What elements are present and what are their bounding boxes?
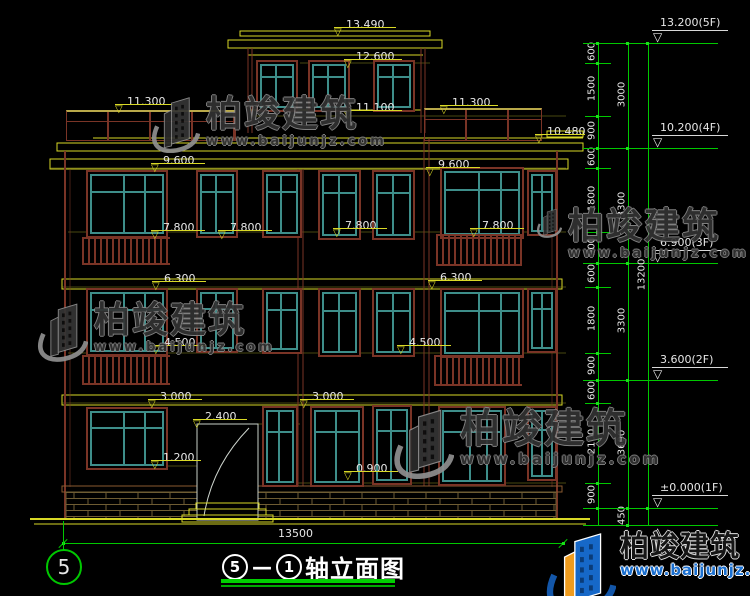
dimension-grip <box>646 42 649 45</box>
width-dimension-line <box>63 543 563 544</box>
dimension-value: 3000 <box>617 64 628 124</box>
level-value: 7.800 <box>345 219 377 232</box>
level-flag: 6.300 ▽ <box>164 267 196 293</box>
dimension-grip <box>626 42 629 45</box>
level-value: 0.900 <box>356 462 388 475</box>
level-triangle-icon: ▽ <box>653 31 662 43</box>
level-triangle-icon: ▽ <box>193 420 201 429</box>
level-value: 4.500 <box>409 336 441 349</box>
level-triangle-icon: ▽ <box>428 281 436 290</box>
title-underline-thick <box>221 579 395 583</box>
level-triangle-icon: ▽ <box>653 496 662 508</box>
floor-level-line <box>583 525 718 526</box>
level-flag: 4.500 ▽ <box>409 331 441 357</box>
dimension-grip <box>596 482 599 485</box>
level-flag: 7.800 ▽ <box>163 216 195 242</box>
window <box>262 406 298 487</box>
watermark-url: www.baijunjz.com <box>94 340 275 355</box>
level-flag: 7.800 ▽ <box>482 214 514 240</box>
watermark: 柏竣建筑 www.baijunjz.com <box>36 302 275 362</box>
level-triangle-icon: ▽ <box>440 106 448 115</box>
dimension-grip <box>596 286 599 289</box>
level-triangle-icon: ▽ <box>397 346 405 355</box>
dimension-grip <box>596 42 599 45</box>
window <box>372 170 415 240</box>
title-axis-start-bubble: 5 <box>222 554 248 580</box>
level-triangle-icon: ▽ <box>300 400 308 409</box>
level-value: 13.490 <box>346 18 385 31</box>
dimension-grip <box>626 262 629 265</box>
watermark-brand: 柏竣建筑 <box>206 96 387 134</box>
dimension-grip <box>626 524 629 527</box>
dimension-grip <box>596 402 599 405</box>
brand-building-icon <box>536 208 562 238</box>
level-triangle-icon: ▽ <box>344 472 352 481</box>
brand-logo-name: 柏竣建筑 <box>620 531 750 561</box>
brand-logo: 柏竣建筑 www.baijunjz.com <box>544 531 750 596</box>
stone-base <box>62 486 562 519</box>
level-flag: 11.300 ▽ <box>452 91 491 117</box>
floor-level-label: 13.200(5F) <box>660 16 720 29</box>
level-value: 6.300 <box>440 271 472 284</box>
entry-door <box>197 424 258 520</box>
level-value: 11.300 <box>452 96 491 109</box>
watermark-brand: 柏竣建筑 <box>568 208 749 246</box>
dimension-grip <box>596 147 599 150</box>
level-value: 7.800 <box>163 221 195 234</box>
level-triangle-icon: ▽ <box>535 135 543 144</box>
brand-building-icon <box>36 302 88 362</box>
watermark-brand: 柏竣建筑 <box>460 408 661 450</box>
dimension-grip <box>626 379 629 382</box>
dimension-grip <box>596 507 599 510</box>
watermark-url: www.baijunjz.com <box>568 246 749 261</box>
watermark-brand: 柏竣建筑 <box>94 302 275 340</box>
watermark: 柏竣建筑 www.baijunjz.com <box>536 208 749 261</box>
brand-building-icon <box>544 531 616 596</box>
level-triangle-icon: ▽ <box>426 168 434 177</box>
level-flag: 7.800 ▽ <box>345 214 377 240</box>
ground-line <box>30 519 590 524</box>
floor-level-label: 10.200(4F) <box>660 121 720 134</box>
level-triangle-icon: ▽ <box>653 368 662 380</box>
floor-level-label: ±0.000(1F) <box>660 481 723 494</box>
level-triangle-icon: ▽ <box>151 164 159 173</box>
level-flag: 12.600 ▽ <box>356 45 395 71</box>
level-flag: 3.000 ▽ <box>312 385 344 411</box>
dimension-grip <box>596 62 599 65</box>
level-flag: 7.800 ▽ <box>230 216 262 242</box>
watermark: 柏竣建筑 www.baijunjz.com <box>150 96 387 153</box>
level-flag: 3.000 ▽ <box>160 385 192 411</box>
level-triangle-icon: ▽ <box>344 60 352 69</box>
dimension-grip <box>596 379 599 382</box>
dimension-grip <box>596 352 599 355</box>
balcony-railing <box>434 355 522 386</box>
level-triangle-icon: ▽ <box>148 400 156 409</box>
floor-level-underline <box>652 495 728 496</box>
level-flag: 1.200 ▽ <box>163 446 195 472</box>
dimension-value: 3300 <box>617 290 628 350</box>
level-value: 12.600 <box>356 50 395 63</box>
level-value: 3.000 <box>312 390 344 403</box>
title-separator: — <box>252 555 272 579</box>
level-value: 3.000 <box>160 390 192 403</box>
level-triangle-icon: ▽ <box>152 282 160 291</box>
axis-line <box>63 521 64 551</box>
level-triangle-icon: ▽ <box>653 136 662 148</box>
level-value: 9.600 <box>438 158 470 171</box>
level-triangle-icon: ▽ <box>151 231 159 240</box>
window <box>440 288 524 358</box>
window <box>527 288 557 353</box>
level-value: 9.600 <box>163 154 195 167</box>
level-triangle-icon: ▽ <box>333 229 341 238</box>
level-value: 6.300 <box>164 272 196 285</box>
width-dimension-label: 13500 <box>278 527 313 540</box>
window <box>262 170 302 238</box>
level-value: 10.480 <box>547 125 586 138</box>
level-triangle-icon: ▽ <box>151 461 159 470</box>
dimension-grip <box>596 262 599 265</box>
brand-logo-url: www.baijunjz.com <box>620 561 750 579</box>
level-flag: 10.480 ▽ <box>547 120 586 146</box>
dimension-grip <box>626 507 629 510</box>
dimension-grip <box>626 147 629 150</box>
brand-building-icon <box>392 408 454 479</box>
title-underline-thin <box>221 585 395 587</box>
level-value: 2.400 <box>205 410 237 423</box>
level-flag: 0.900 ▽ <box>356 457 388 483</box>
floor-level-underline <box>652 30 728 31</box>
floor-level-label: 3.600(2F) <box>660 353 713 366</box>
watermark: 柏竣建筑 www.baijunjz.com <box>392 408 661 479</box>
level-value: 7.800 <box>482 219 514 232</box>
dimension-grip <box>596 167 599 170</box>
balcony-railing <box>82 237 170 265</box>
level-flag: 9.600 ▽ <box>438 153 470 179</box>
level-flag: 6.300 ▽ <box>440 266 472 292</box>
level-triangle-icon: ▽ <box>334 28 342 37</box>
level-flag: 2.400 ▽ <box>205 405 237 431</box>
axis-bubble-number: 5 <box>58 555 71 579</box>
watermark-url: www.baijunjz.com <box>460 450 661 468</box>
level-triangle-icon: ▽ <box>115 105 123 114</box>
floor-level-underline <box>652 367 728 368</box>
floor-level-underline <box>652 135 728 136</box>
dimension-grip <box>596 115 599 118</box>
level-triangle-icon: ▽ <box>470 229 478 238</box>
window <box>86 170 168 238</box>
level-triangle-icon: ▽ <box>218 231 226 240</box>
level-value: 7.800 <box>230 221 262 234</box>
level-flag: 13.490 ▽ <box>346 13 385 39</box>
dimension-grip <box>646 507 649 510</box>
brand-building-icon <box>150 96 200 153</box>
elevation-drawing-canvas: 13500 5 5 — 1 轴立面图 13.490 ▽ 1 <box>0 0 750 596</box>
title-axis-end-bubble: 1 <box>276 554 302 580</box>
level-value: 1.200 <box>163 451 195 464</box>
axis-bubble: 5 <box>46 549 82 585</box>
window <box>318 288 361 357</box>
watermark-url: www.baijunjz.com <box>206 134 387 149</box>
